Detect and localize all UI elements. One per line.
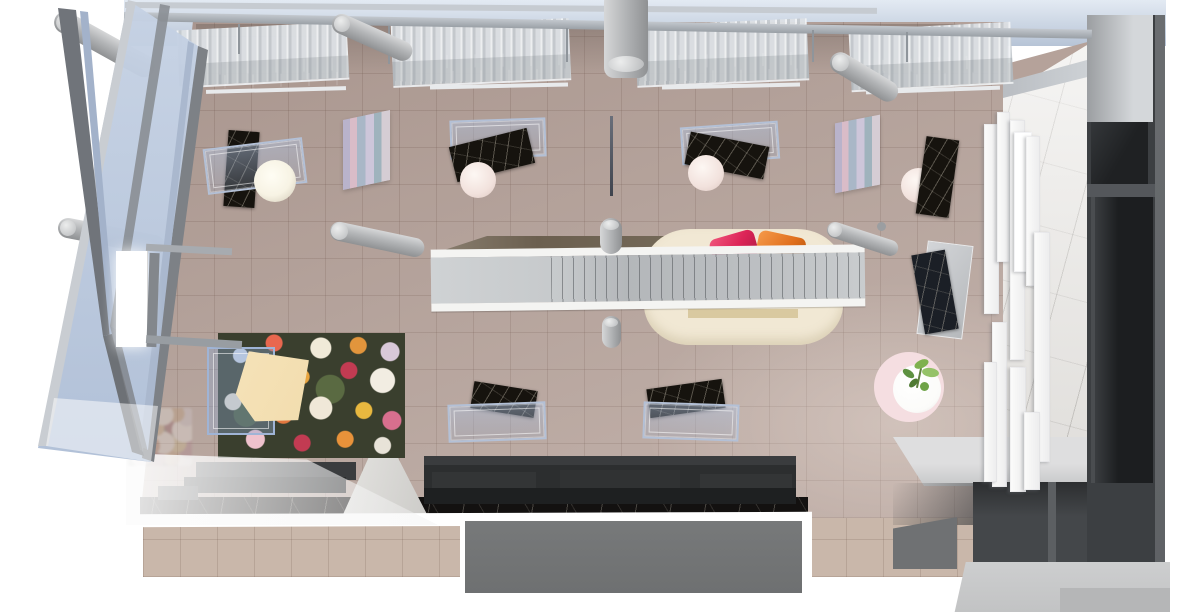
column-cap: [826, 221, 844, 239]
platform-shadow: [893, 483, 977, 525]
wall-lightbox: [116, 251, 148, 347]
white-wall-shelving: [984, 112, 1050, 492]
shelf-panel: [1024, 412, 1040, 490]
column-escalator-bottom: [602, 316, 621, 348]
glass-case-inner-frame: [454, 408, 541, 437]
storage-recess-upper: [1091, 122, 1148, 184]
column-cap: [604, 318, 618, 327]
column-cap: [603, 220, 619, 230]
glass-curtain-wall: [18, 0, 208, 475]
hanger-rod: [812, 30, 814, 62]
storage-shelf-divider: [1087, 184, 1155, 197]
store-topdown-render: [0, 0, 1200, 616]
bottom-steps-band: [948, 562, 1170, 612]
escalator: [431, 244, 866, 311]
column-center-top: [604, 0, 648, 78]
plant-leaf: [920, 382, 929, 391]
gradient-art-panel-left: [343, 110, 390, 190]
vestibule-roof: [465, 521, 802, 593]
bottom-step-line: [1060, 588, 1170, 612]
floor-spot-dot: [877, 222, 886, 231]
escalator-landing: [431, 256, 564, 304]
sphere-lamp: [254, 160, 296, 202]
hanging-banner-blade: [610, 116, 613, 196]
glass-bottom-sheen: [46, 398, 158, 462]
hanger-rod: [566, 28, 568, 62]
escalator-tread-lines: [551, 252, 866, 302]
display-case-bottom-right: [642, 401, 739, 441]
island-step: [688, 309, 798, 318]
column-cap: [329, 221, 349, 241]
compartment-divider: [1048, 482, 1056, 568]
gradient-art-panel-right: [835, 115, 880, 194]
fitting-compartments: [973, 482, 1087, 568]
storage-outer-edge: [1155, 15, 1165, 573]
display-case-bottom-left: [447, 401, 546, 442]
column-cap: [331, 13, 352, 34]
storage-face-top: [1087, 15, 1153, 122]
round-table-top-right: [688, 155, 724, 191]
storage-recess-lower: [1091, 197, 1153, 483]
column-escalator-top: [600, 218, 622, 254]
round-table-top-left: [460, 162, 496, 198]
hanger-rod: [238, 24, 240, 54]
column-cap: [608, 56, 644, 72]
shelf-panel: [997, 112, 1010, 262]
plant-leaf: [921, 367, 939, 378]
bench-center-front: [424, 488, 796, 504]
glass-case-inner-frame: [649, 408, 734, 436]
shelf-panel: [984, 362, 997, 482]
potted-plant: [898, 358, 942, 402]
hanger-rod: [906, 32, 908, 62]
